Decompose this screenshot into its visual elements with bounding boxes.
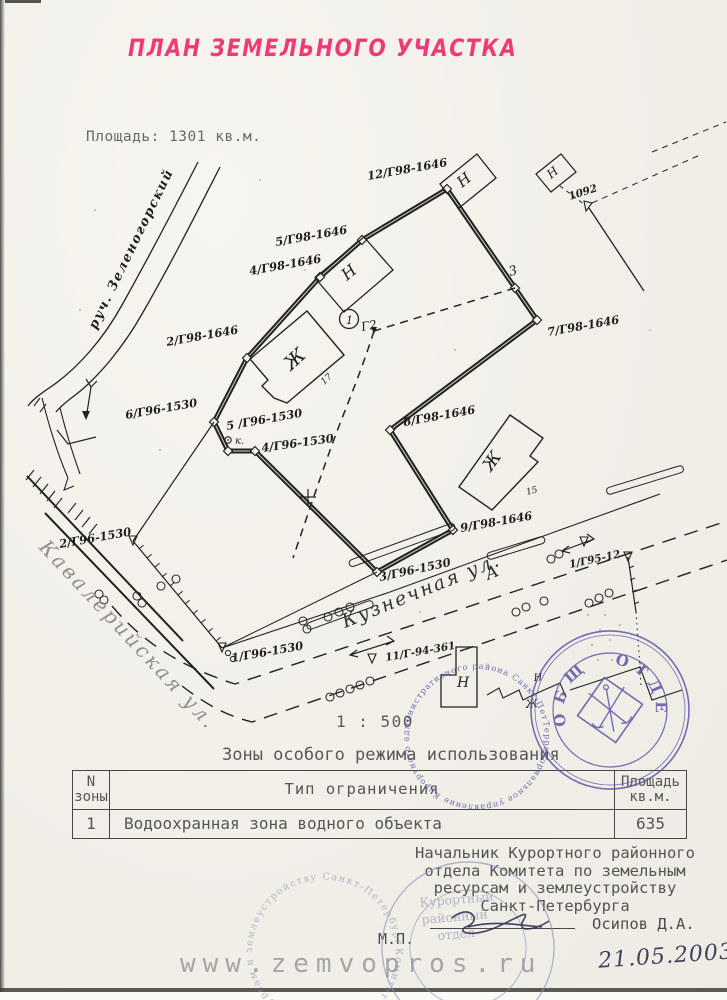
signature-line4: Санкт-Петербурга: [400, 898, 710, 916]
building-letter: Ж: [278, 344, 311, 376]
table-header-zone: N зоны: [73, 771, 109, 809]
building-n-bottom: Н: [441, 647, 477, 707]
zones-table: N зоны Тип ограничения Площадь кв.м. 1 В…: [72, 770, 687, 839]
parcel-point-label: 2/Г96-1530: [57, 525, 132, 552]
tree-symbols: [95, 550, 613, 701]
parcel-point-label: 4/Г98-1646: [248, 252, 322, 278]
point-g2-label: Г2: [359, 317, 378, 334]
scan-edge-left: [0, 0, 5, 1000]
parcel-point-label: 5/Г98-1646: [274, 223, 348, 249]
boundary-vertex-markers: [210, 185, 542, 577]
signature-scribble: [452, 912, 549, 933]
water-protection-zone-boundary: 1 Г2 3: [293, 263, 519, 558]
building-n-mid: Н: [315, 237, 393, 312]
point-3-label: 3: [507, 263, 519, 280]
building-letter: Ж: [478, 447, 506, 476]
building-number: 15: [525, 485, 539, 498]
table-header-zone-line2: зоны: [74, 790, 108, 805]
handwritten-date: 21.05.2003 г.: [597, 937, 727, 973]
buildings: Н Н Н Ж 17 Ж 15 Н: [250, 154, 682, 711]
building-letter: Н: [456, 675, 470, 691]
parcel-point-label: 8/Г98-1646: [402, 403, 476, 429]
survey-line-1092: [560, 122, 726, 291]
table-cell-area: 635: [614, 809, 686, 838]
table-header-type: Тип ограничения: [109, 771, 614, 809]
zones-heading: Зоны особого режима использования: [222, 745, 560, 765]
building-letter: Н: [532, 672, 543, 684]
parcel-point-label: 1092: [567, 182, 599, 202]
page-title: ПЛАН ЗЕМЕЛЬНОГО УЧАСТКА: [128, 34, 517, 62]
total-area-text: Площадь: 1301 кв.м.: [86, 129, 261, 145]
table-header-area-line1: Площадь: [621, 775, 680, 790]
building-n-far-right: Н: [536, 154, 576, 192]
street-letter-a: А: [481, 561, 501, 585]
parcel-point-label: 3/Г96-1530: [378, 555, 452, 584]
table-header-area: Площадь кв.м.: [614, 771, 686, 809]
parcel-point-label: 4/Г96-1530: [260, 431, 334, 455]
parcel-point-label: 5 /Г96-1530: [225, 406, 303, 433]
zone-number-label: 1: [346, 314, 353, 327]
parcel-point-label: 1/Г96-1530: [230, 639, 304, 665]
stream-name-label: руч. Зеленогорский: [86, 167, 177, 332]
street-name-kavaleriyskaya: Кавалерийская ул.: [34, 534, 223, 734]
building-letter: Н: [337, 260, 361, 285]
map-scale-text: 1 : 500: [336, 712, 414, 731]
parcel-point-label: 7/Г98-1646: [546, 313, 620, 339]
scanned-land-plan-page: ПЛАН ЗЕМЕЛЬНОГО УЧАСТКА Площадь: 1301 кв…: [0, 0, 727, 1000]
parcel-boundary: [210, 185, 542, 577]
blue-stamp-word-top: ОБЩИЙ: [0, 0, 602, 826]
buildings-bottom-right: Ж Н: [487, 667, 682, 711]
signature-block: Начальник Курортного районного отдела Ко…: [400, 845, 710, 915]
parcel-point-label: 6/Г96-1530: [124, 396, 198, 422]
table-cell-type: Водоохранная зона водного объекта: [109, 809, 614, 838]
parcel-point-label: 1/Г95-12: [568, 548, 621, 571]
table-header-zone-line1: N: [87, 775, 95, 790]
signatory-name: Осипов Д.А.: [592, 915, 695, 933]
svg-text:Комитет по земельным ресурсам: Комитет по земельным ресурсам и землеуст…: [0, 0, 404, 1000]
streets: к. Кузнечная ул. А Кавалерийская ул.: [26, 398, 727, 735]
building-letter: Н: [452, 168, 475, 191]
watermark-text: www.zemvopros.ru: [180, 949, 542, 979]
parcel-point-label: 12/Г98-1646: [366, 155, 448, 183]
stream: руч. Зеленогорский: [28, 162, 220, 490]
scan-edge-top-mark: [5, 0, 41, 3]
table-cell-zone: 1: [73, 809, 109, 838]
parcel-point-label: 2/Г98-1646: [164, 323, 239, 350]
scan-speckles: [79, 179, 651, 661]
stamp-emblem: [572, 672, 648, 748]
building-number: 17: [319, 372, 334, 387]
building-letter: Ж: [524, 697, 539, 711]
building-n-top: Н: [440, 154, 496, 208]
building-zh-right: Ж 15: [459, 415, 543, 510]
faint-stamp-ring-text: Комитет по земельным ресурсам и землеуст…: [0, 0, 404, 1000]
building-zh-central: Ж 17: [250, 311, 344, 403]
scan-edge-bottom-light: [0, 992, 727, 1000]
svg-text:ОБЩИЙ: ОБЩИЙ: [0, 0, 602, 826]
parcel-point-label: 11/Г-94-361: [384, 640, 456, 664]
parcel-point-labels: 12/Г98-1646 5/Г98-1646 4/Г98-1646 2/Г98-…: [57, 155, 621, 665]
street-name-kuznechnaya: Кузнечная ул.: [338, 549, 504, 633]
building-letter: Н: [543, 164, 561, 182]
well-label: к.: [235, 436, 244, 447]
signature-rule: [430, 928, 575, 929]
signature-line3: ресурсам и землеустройству: [400, 880, 710, 898]
seal-place-mark: М.П.: [378, 930, 414, 948]
signature-line1: Начальник Курортного районного: [400, 845, 710, 863]
table-header-area-line2: кв.м.: [629, 790, 671, 805]
parcel-point-label: 9/Г98-1646: [459, 509, 533, 535]
signature-line2: отдела Комитета по земельным: [400, 863, 710, 881]
